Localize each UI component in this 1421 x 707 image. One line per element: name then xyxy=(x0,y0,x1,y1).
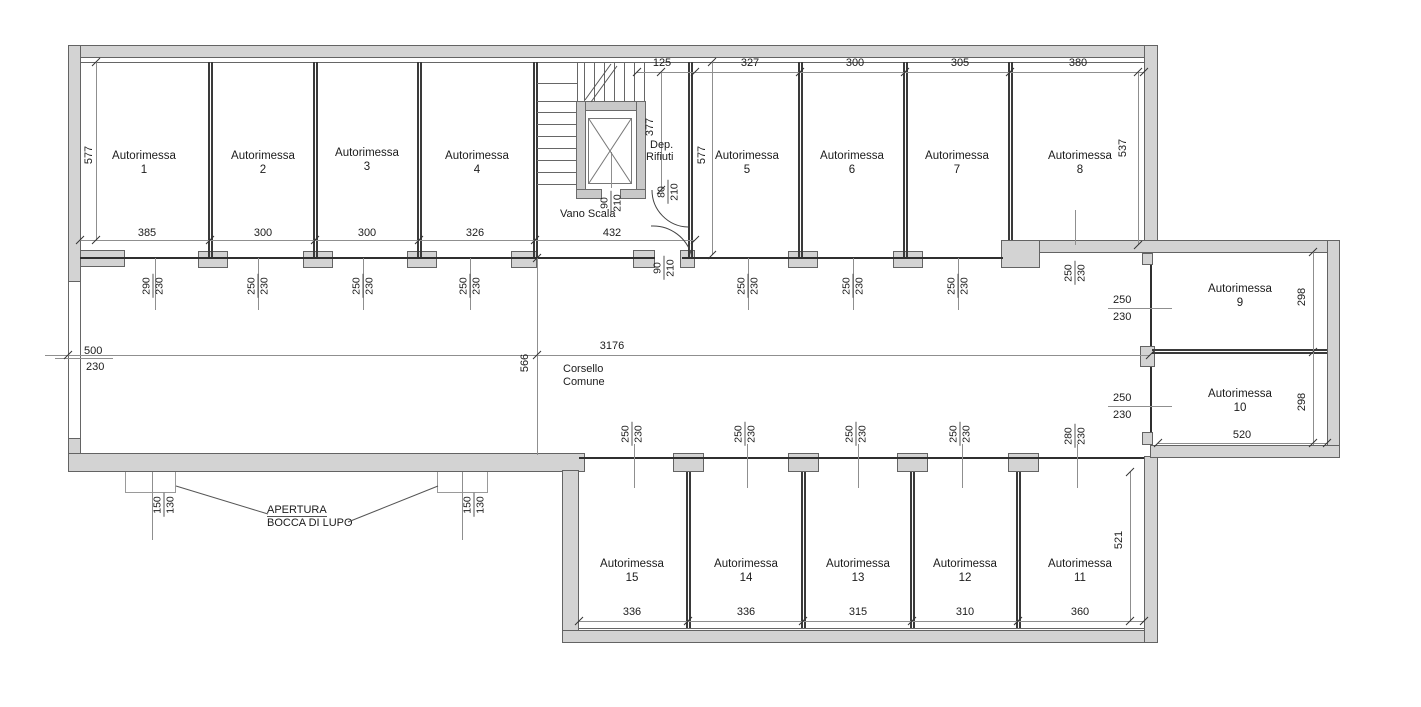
door-leader xyxy=(962,444,963,488)
partition-g15-g14 xyxy=(686,472,691,628)
stair-tread xyxy=(537,124,576,125)
dim-line xyxy=(637,72,694,73)
wall-top xyxy=(68,45,1158,58)
stair-landing xyxy=(537,101,577,102)
extension-left-wall xyxy=(1150,265,1152,346)
dim-stair-depth: 377 xyxy=(644,118,656,136)
partition-g13-g12 xyxy=(910,472,915,628)
partition-g14-g13 xyxy=(801,472,806,628)
dim-g7-width: 305 xyxy=(951,57,969,69)
dim-g14-width: 336 xyxy=(737,606,755,618)
wall-extension-bottom xyxy=(1150,445,1340,458)
dim-line xyxy=(1313,252,1314,445)
inner-top-line xyxy=(81,62,1144,63)
elevator-shaft-wall xyxy=(576,101,586,199)
bocca-dim-1: 150130 xyxy=(152,493,177,517)
door-dim-g2: 250230 xyxy=(246,274,271,298)
dim-corridor-width: 566 xyxy=(519,354,531,372)
wall-extension-top xyxy=(1035,240,1340,253)
dim-g1-width: 385 xyxy=(138,227,156,239)
dim-g9-door-den: 230 xyxy=(1113,311,1131,323)
dim-entrance-num: 500 xyxy=(84,345,102,357)
stair-tread xyxy=(584,62,585,101)
wall-bottom-left xyxy=(68,453,585,472)
dim-g10-height: 298 xyxy=(1296,393,1308,411)
dim-g8-width: 380 xyxy=(1069,57,1087,69)
stair-tread xyxy=(537,160,576,161)
dim-height-g8: 537 xyxy=(1117,139,1129,157)
dim-corridor-length: 3176 xyxy=(600,340,624,352)
garage-front-line xyxy=(682,257,1003,259)
dim-g4-width: 326 xyxy=(466,227,484,239)
stair-boundary xyxy=(577,62,578,101)
stair-tread xyxy=(537,112,576,113)
stair-tread xyxy=(614,62,615,101)
pillar xyxy=(198,251,228,268)
dim-g12-width: 310 xyxy=(956,606,974,618)
elevator-leader xyxy=(611,152,612,188)
dim-line xyxy=(80,240,695,241)
dim-g6-width: 300 xyxy=(846,57,864,69)
room-label-autorimessa-13: Autorimessa13 xyxy=(793,558,923,585)
ramp-jamb xyxy=(68,282,69,438)
door-dim-elevator: 90210 xyxy=(599,191,624,215)
wall-bottomband-left xyxy=(562,470,579,643)
apertura-label-line1: APERTURA xyxy=(267,504,327,517)
floor-plan: Autorimessa1 Autorimessa2 Autorimessa3 A… xyxy=(0,0,1421,707)
stair-tread xyxy=(537,172,576,173)
stair-tread xyxy=(624,62,625,101)
pillar xyxy=(1142,432,1153,445)
dim-g10-door-den: 230 xyxy=(1113,409,1131,421)
dim-g9-height: 298 xyxy=(1296,288,1308,306)
door-dim-g6: 250230 xyxy=(841,274,866,298)
dim-line xyxy=(579,621,1144,622)
entrance-fraction-bar xyxy=(55,358,113,359)
stair-tread xyxy=(594,62,595,101)
door-dim-rifiuti: 80210 xyxy=(656,180,681,204)
door-dim-g1: 290230 xyxy=(141,274,166,298)
stair-tread xyxy=(634,62,635,101)
door-dim-g15: 250230 xyxy=(620,422,645,446)
garage-front-line xyxy=(80,257,655,259)
door-dim-g11: 280230 xyxy=(1063,424,1088,448)
elevator-shaft-wall xyxy=(620,189,646,199)
dim-line xyxy=(695,72,1144,73)
dim-g10-width: 520 xyxy=(1233,429,1251,441)
room-label-autorimessa-9: Autorimessa9 xyxy=(1175,283,1305,310)
door-dim-g4: 250230 xyxy=(458,274,483,298)
room-label-corsello-line1: Corsello xyxy=(563,363,603,375)
stair-tread xyxy=(604,62,605,101)
stair-tread xyxy=(537,148,576,149)
dim-g2-width: 300 xyxy=(254,227,272,239)
dim-g13-width: 315 xyxy=(849,606,867,618)
partition-g9-g10 xyxy=(1152,349,1327,354)
elevator-shaft-wall xyxy=(636,101,646,199)
room-label-autorimessa-11: Autorimessa11 xyxy=(1015,558,1145,585)
garage-front-line-bottom xyxy=(579,457,1144,459)
room-label-autorimessa-1: Autorimessa1 xyxy=(79,150,209,177)
pillar xyxy=(1008,453,1039,472)
dim-g10-door-num: 250 xyxy=(1113,392,1131,404)
dim-line xyxy=(661,72,662,190)
room-label-autorimessa-4: Autorimessa4 xyxy=(412,150,542,177)
wall-extension-right xyxy=(1327,240,1340,458)
dim-g11-width: 360 xyxy=(1071,606,1089,618)
stair-tread xyxy=(644,62,645,101)
dim-height-left: 577 xyxy=(83,146,95,164)
door-dim-g14: 250230 xyxy=(733,422,758,446)
stair-tread xyxy=(537,136,576,137)
dim-g3-width: 300 xyxy=(358,227,376,239)
pillar xyxy=(788,251,818,268)
door-dim-g5: 250230 xyxy=(736,274,761,298)
pillar xyxy=(407,251,437,268)
room-label-autorimessa-7: Autorimessa7 xyxy=(892,150,1022,177)
door-dim-g12: 250230 xyxy=(948,422,973,446)
pillar xyxy=(1001,240,1040,268)
pillar xyxy=(303,251,333,268)
room-label-dep-rifiuti-line2: Rifiuti xyxy=(646,151,674,163)
ramp-jamb xyxy=(80,282,81,438)
stair-tread xyxy=(537,184,576,185)
partition-g12-g11 xyxy=(1016,472,1021,628)
door-dim-g7: 250230 xyxy=(946,274,971,298)
door-leader xyxy=(1077,444,1078,488)
door-dim-g3: 250230 xyxy=(351,274,376,298)
bottom-inner-line xyxy=(579,628,1144,629)
wall-topband-right xyxy=(1144,45,1158,253)
pillar xyxy=(1142,253,1153,265)
pillar xyxy=(673,453,704,472)
room-label-dep-rifiuti-line1: Dep. xyxy=(650,139,673,151)
dim-entrance-den: 230 xyxy=(86,361,104,373)
extension-left-wall xyxy=(1150,367,1152,432)
dim-g11-height: 521 xyxy=(1113,531,1125,549)
dim-stair-width: 432 xyxy=(603,227,621,239)
door-dim-scala: 90210 xyxy=(652,256,677,280)
bocca-dim-2: 150130 xyxy=(462,493,487,517)
pillar xyxy=(897,453,928,472)
bocca-di-lupo-opening-1 xyxy=(125,472,176,493)
room-label-autorimessa-15: Autorimessa15 xyxy=(567,558,697,585)
door-leader xyxy=(747,444,748,488)
g9-door-bar xyxy=(1108,308,1172,309)
room-label-autorimessa-10: Autorimessa10 xyxy=(1175,388,1305,415)
dim-line xyxy=(537,258,538,455)
dim-stair-top: 125 xyxy=(653,57,671,69)
room-label-autorimessa-14: Autorimessa14 xyxy=(681,558,811,585)
dim-height-mid: 577 xyxy=(696,146,708,164)
room-label-corsello-line2: Comune xyxy=(563,376,605,388)
dim-g9-door-num: 250 xyxy=(1113,294,1131,306)
apertura-label-line2: BOCCA DI LUPO xyxy=(267,517,353,529)
door-dim-g8: 250230 xyxy=(1063,261,1088,285)
dim-g15-width: 336 xyxy=(623,606,641,618)
dim-line xyxy=(1130,472,1131,621)
wall-bottomband-right xyxy=(1144,456,1158,643)
elevator-car xyxy=(588,118,632,184)
door-dim-g13: 250230 xyxy=(844,422,869,446)
g10-door-bar xyxy=(1108,406,1172,407)
dim-g5-width: 327 xyxy=(741,57,759,69)
door-leader xyxy=(858,444,859,488)
wall-bottom xyxy=(562,630,1158,643)
door-leader xyxy=(634,444,635,488)
dim-line-corridor xyxy=(45,355,1150,356)
door-leader xyxy=(1075,210,1076,245)
dim-line xyxy=(1158,443,1327,444)
pillar xyxy=(893,251,923,268)
stair-landing xyxy=(537,83,577,84)
pillar xyxy=(788,453,819,472)
